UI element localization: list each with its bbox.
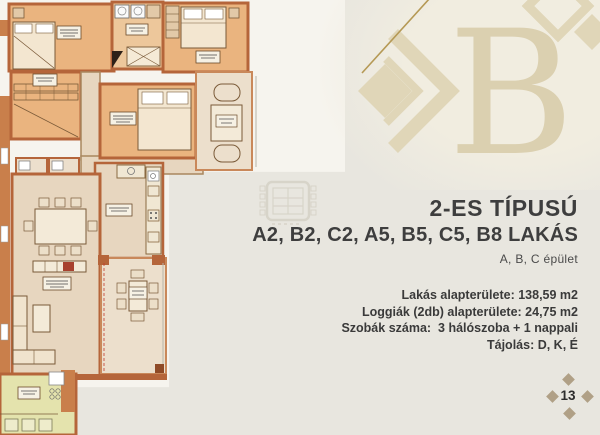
dressing-room — [11, 72, 81, 139]
sideboard-icon — [33, 261, 86, 272]
unit-list-title: A2, B2, C2, A5, B5, C5, B8 LAKÁS — [252, 224, 578, 247]
monogram-letter: B — [448, 0, 574, 180]
neighbor-unit — [0, 370, 76, 435]
room-label — [33, 74, 57, 86]
diamond-icon — [563, 407, 576, 420]
loggia-2 — [98, 255, 166, 374]
living-dining — [12, 174, 100, 378]
detail-loggia-area: Loggiák (2db) alapterülete: 24,75 m2 — [341, 304, 578, 321]
diamond-icon — [581, 390, 594, 403]
sink-icon — [52, 161, 63, 170]
brand-monogram-logo: B — [330, 0, 600, 180]
apartment-details: Lakás alapterülete: 138,59 m2 Loggiák (2… — [341, 287, 578, 353]
room-label — [57, 26, 81, 39]
building-subtitle: A, B, C épület — [252, 252, 578, 266]
toilet-icon — [19, 161, 30, 170]
room-label — [106, 204, 132, 216]
counter — [146, 167, 161, 254]
room-label — [43, 277, 71, 290]
diamond-icon — [562, 373, 575, 386]
page-marker: 13 — [540, 368, 596, 424]
shower-icon — [127, 47, 160, 66]
detail-orientation: Tájolás: D, K, É — [341, 337, 578, 354]
page-number: 13 — [553, 388, 583, 403]
bed-icon — [138, 89, 191, 150]
kitchen — [95, 163, 163, 258]
room-label — [126, 24, 148, 35]
room-label — [18, 387, 40, 399]
bed-icon — [13, 22, 55, 69]
type-title: 2-ES TÍPUSÚ — [252, 196, 578, 220]
detail-floor-area: Lakás alapterülete: 138,59 m2 — [341, 287, 578, 304]
coffee-table-icon — [33, 305, 50, 332]
room-label — [196, 51, 220, 63]
room-label — [110, 112, 136, 125]
bathroom — [112, 2, 163, 69]
detail-rooms: Szobák száma: 3 hálószoba + 1 nappali — [341, 320, 578, 337]
apartment-title-block: 2-ES TÍPUSÚ A2, B2, C2, A5, B5, C5, B8 L… — [252, 196, 578, 266]
brochure-page: B — [0, 0, 600, 435]
room-label — [216, 115, 237, 127]
left-wall-strip — [0, 20, 10, 378]
bedroom-2 — [163, 3, 248, 72]
loggia-1 — [196, 72, 256, 170]
bedroom-3 — [100, 84, 196, 158]
bed-icon — [181, 7, 226, 48]
room-label — [129, 287, 147, 299]
bedroom-1 — [9, 4, 114, 71]
